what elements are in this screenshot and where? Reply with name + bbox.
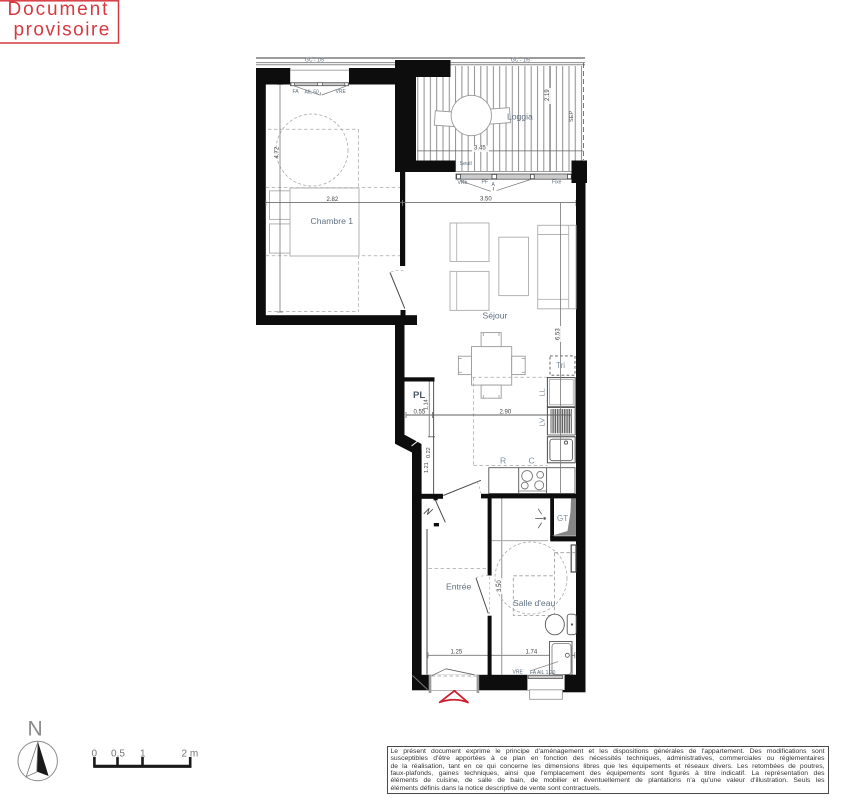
- svg-text:0: 0: [92, 749, 98, 760]
- svg-text:GC - 1/5: GC - 1/5: [305, 58, 324, 64]
- svg-text:3.50: 3.50: [497, 580, 503, 592]
- svg-text:VRE: VRE: [336, 89, 347, 95]
- svg-text:VRE: VRE: [513, 670, 524, 676]
- svg-text:Séjour: Séjour: [483, 311, 508, 321]
- svg-text:C: C: [529, 456, 535, 466]
- svg-text:Loggia: Loggia: [507, 112, 533, 122]
- svg-text:Entrée: Entrée: [446, 582, 472, 592]
- svg-text:LV: LV: [538, 418, 547, 427]
- svg-text:N: N: [28, 718, 43, 741]
- svg-text:R: R: [500, 456, 506, 466]
- svg-text:provisoire: provisoire: [14, 19, 111, 40]
- svg-text:GT: GT: [557, 514, 568, 523]
- svg-text:SEP: SEP: [569, 111, 575, 122]
- svg-text:0.22: 0.22: [426, 447, 432, 458]
- svg-text:Seuil: Seuil: [460, 161, 472, 167]
- svg-text:2.90: 2.90: [500, 409, 512, 415]
- svg-text:GC - 1/5: GC - 1/5: [511, 58, 530, 64]
- svg-text:AIL 50: AIL 50: [305, 89, 319, 95]
- svg-text:1.21: 1.21: [424, 462, 430, 473]
- svg-text:A: A: [492, 182, 496, 188]
- svg-text:FA: FA: [293, 89, 300, 95]
- svg-text:1: 1: [140, 749, 146, 760]
- svg-text:1.25: 1.25: [451, 649, 463, 655]
- svg-text:PF: PF: [482, 180, 488, 186]
- svg-text:1.74: 1.74: [526, 649, 538, 655]
- svg-text:2 m: 2 m: [182, 749, 199, 760]
- svg-text:Chambre 1: Chambre 1: [311, 216, 354, 226]
- svg-text:3.50: 3.50: [480, 196, 492, 202]
- svg-text:0,5: 0,5: [111, 749, 125, 760]
- svg-text:1.14: 1.14: [424, 399, 430, 410]
- svg-text:4.72: 4.72: [275, 146, 281, 158]
- svg-text:Salle d'eau: Salle d'eau: [513, 598, 555, 608]
- svg-text:LL: LL: [538, 388, 547, 396]
- svg-text:VRb: VRb: [458, 180, 468, 186]
- svg-text:2.82: 2.82: [327, 197, 339, 203]
- svg-text:Document: Document: [8, 0, 110, 20]
- svg-text:6.53: 6.53: [556, 328, 562, 340]
- svg-text:2.19: 2.19: [545, 89, 551, 101]
- svg-text:3.45: 3.45: [474, 146, 486, 152]
- svg-text:Fixe: Fixe: [552, 180, 562, 186]
